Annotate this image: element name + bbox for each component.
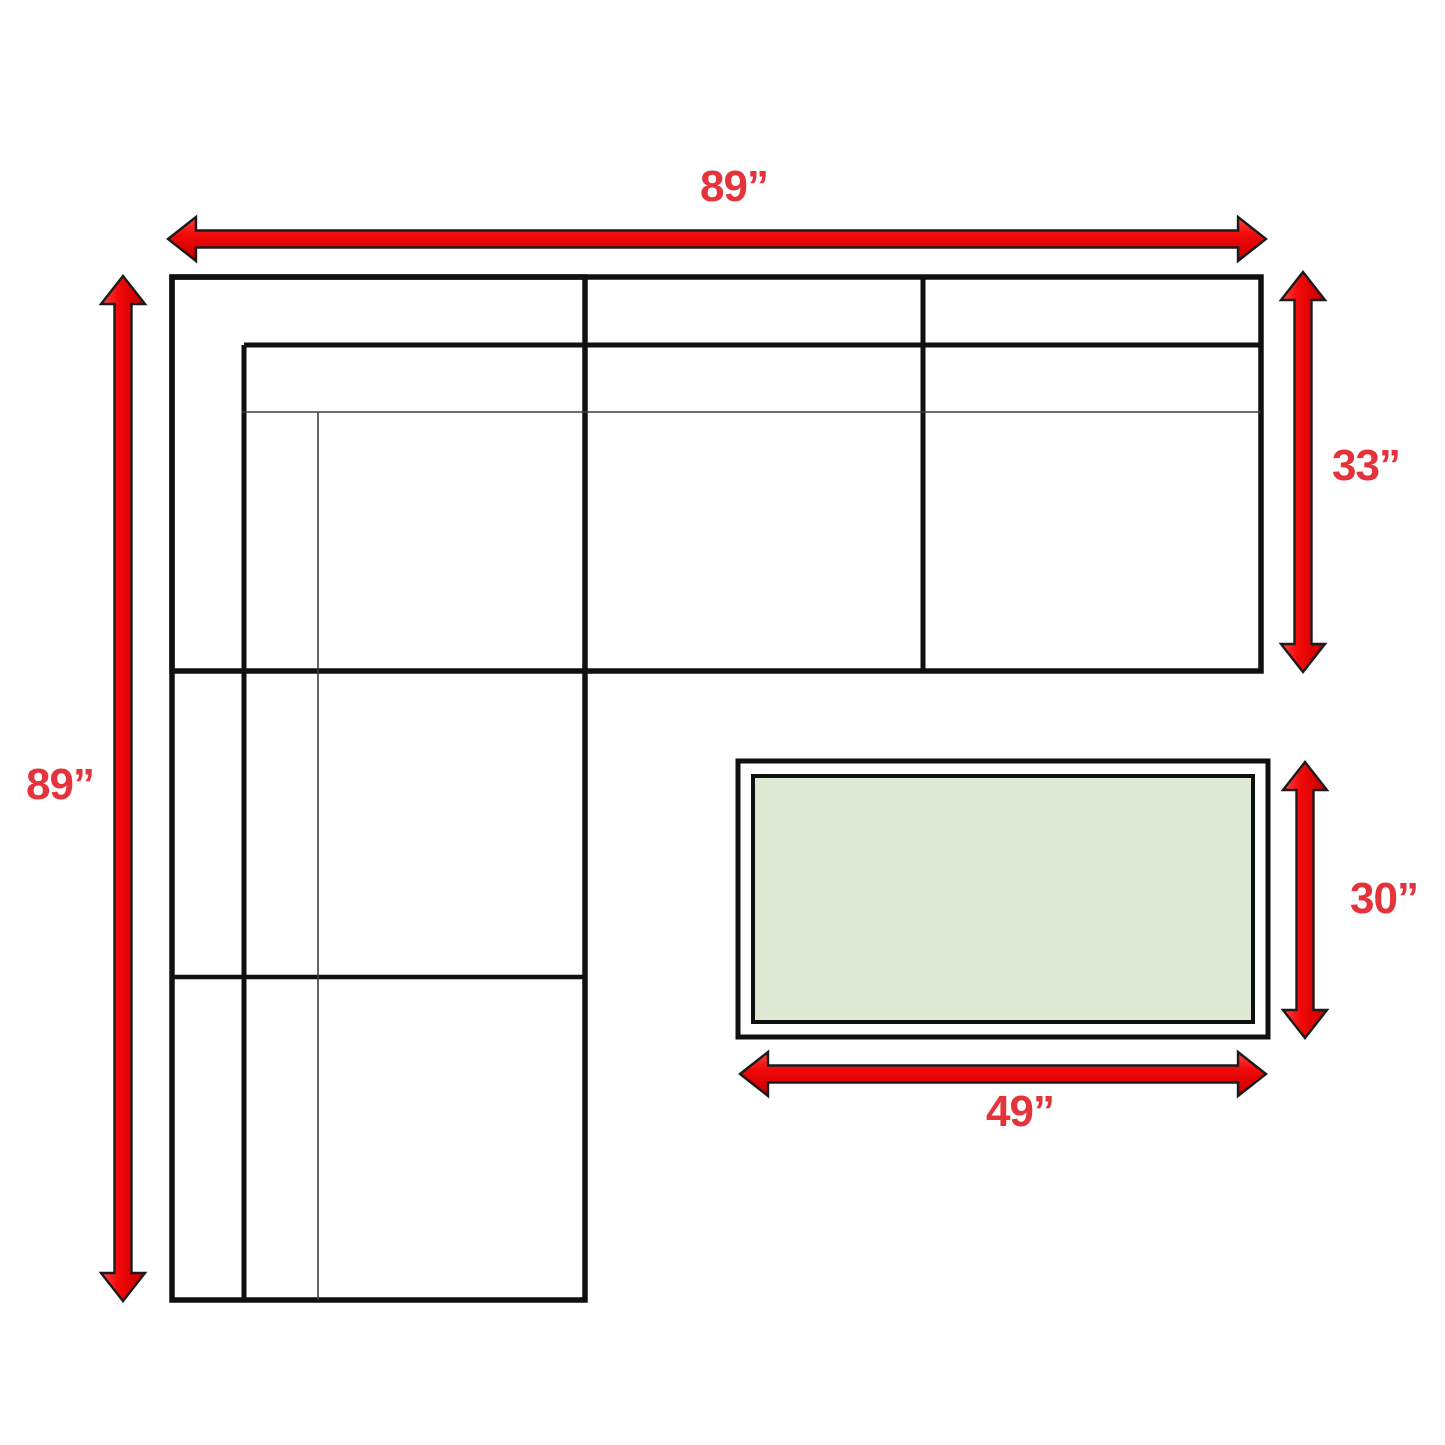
sofa-left-depth-label: 89” <box>26 760 94 810</box>
sofa-width-label: 89” <box>700 162 768 212</box>
dimension-arrow-sofa-left-depth <box>101 276 145 1301</box>
dimension-arrow-sofa-right-depth <box>1281 272 1325 672</box>
sofa-right-depth-label: 33” <box>1332 441 1400 491</box>
sofa-left-section-outline <box>172 277 585 1300</box>
sofa-floorplan-svg <box>0 0 1445 1445</box>
ottoman-depth-label: 30” <box>1350 874 1418 924</box>
floorplan-canvas: 89” 89” 33” 30” 49” <box>0 0 1445 1445</box>
ottoman-inner-rect <box>753 776 1253 1022</box>
dimension-arrow-ottoman-depth <box>1283 762 1327 1038</box>
ottoman-width-label: 49” <box>986 1087 1054 1137</box>
dimension-arrow-sofa-width <box>168 217 1266 261</box>
sofa-top-section-outline <box>172 277 1261 671</box>
